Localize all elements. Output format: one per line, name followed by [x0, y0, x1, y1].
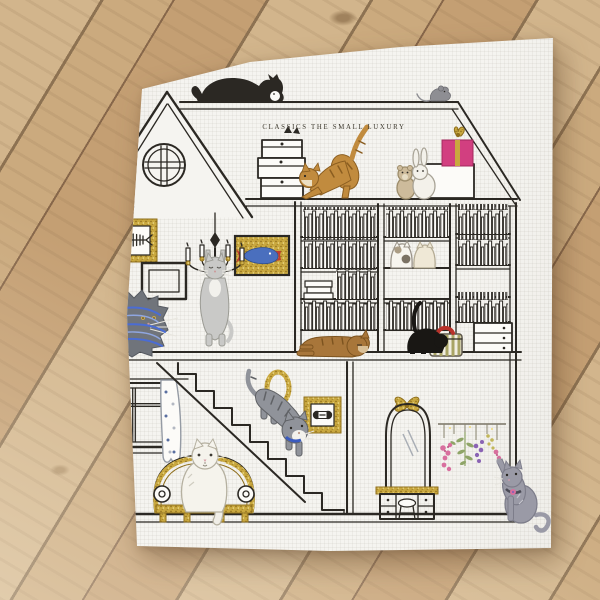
shelf-cats-pair	[391, 241, 435, 268]
mouse-on-roof	[417, 86, 451, 101]
stretching-ginger-cat	[300, 127, 368, 199]
white-longhair-cat-on-sofa	[182, 439, 228, 521]
empty-frame	[142, 263, 186, 299]
yarn-tangled-fluffy-cat	[90, 287, 181, 357]
black-cat-on-roof	[191, 74, 283, 103]
arched-mirror	[386, 397, 430, 490]
fishbone-picture	[99, 219, 157, 262]
stacked-boxes	[258, 126, 305, 198]
gable-roof	[84, 92, 252, 221]
sleeping-brown-cat	[297, 330, 369, 357]
drawer-chest	[474, 323, 512, 352]
stool	[399, 499, 416, 519]
flat-book-stack	[304, 281, 333, 299]
dollhouse-illustration: CLASSICS THE SMALL LUXURY	[0, 0, 600, 600]
window-with-curtains	[84, 379, 188, 462]
brand-text: CLASSICS THE SMALL LUXURY	[262, 124, 405, 131]
handkerchief: CLASSICS THE SMALL LUXURY	[0, 0, 600, 600]
bookshelf	[295, 202, 512, 352]
reaching-gray-cat	[494, 458, 549, 530]
cloth-shadow: CLASSICS THE SMALL LUXURY	[0, 0, 600, 600]
framed-dumbbell-picture	[304, 397, 341, 433]
photo-of-handkerchief: CLASSICS THE SMALL LUXURY	[0, 0, 600, 600]
hanging-dried-flowers	[438, 424, 506, 471]
tabby-cat-on-stairs	[248, 371, 314, 456]
